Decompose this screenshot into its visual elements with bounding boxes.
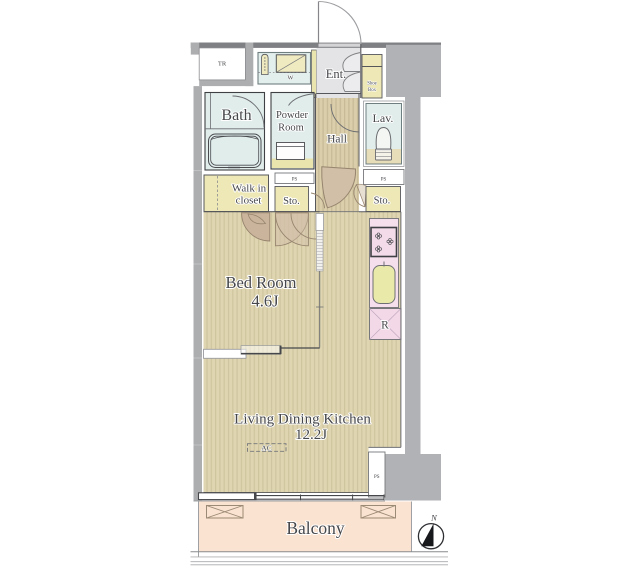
svg-text:TR: TR [218, 61, 227, 68]
svg-text:Powder: Powder [276, 110, 309, 121]
svg-text:Hall: Hall [327, 134, 347, 146]
svg-text:Bed Room: Bed Room [225, 273, 296, 292]
svg-text:PS: PS [292, 178, 298, 183]
svg-text:Shoe: Shoe [367, 82, 377, 87]
svg-text:Balcony: Balcony [286, 518, 345, 538]
svg-text:Sto.: Sto. [283, 196, 300, 207]
svg-text:PS: PS [374, 475, 380, 480]
svg-text:4.6J: 4.6J [251, 292, 279, 311]
svg-text:W: W [287, 75, 294, 82]
svg-text:Sto.: Sto. [374, 196, 391, 207]
svg-text:R: R [381, 320, 389, 332]
svg-text:Room: Room [278, 123, 304, 134]
svg-text:Living Dining Kitchen: Living Dining Kitchen [234, 412, 371, 428]
svg-text:12.2J: 12.2J [295, 427, 327, 443]
svg-text:AC: AC [261, 443, 271, 452]
svg-text:Lav.: Lav. [373, 111, 394, 125]
svg-text:closet: closet [236, 195, 262, 207]
svg-text:Walk in: Walk in [232, 183, 267, 195]
svg-text:Box: Box [368, 88, 377, 93]
svg-text:Bath: Bath [221, 107, 251, 124]
svg-text:PS: PS [381, 178, 387, 183]
